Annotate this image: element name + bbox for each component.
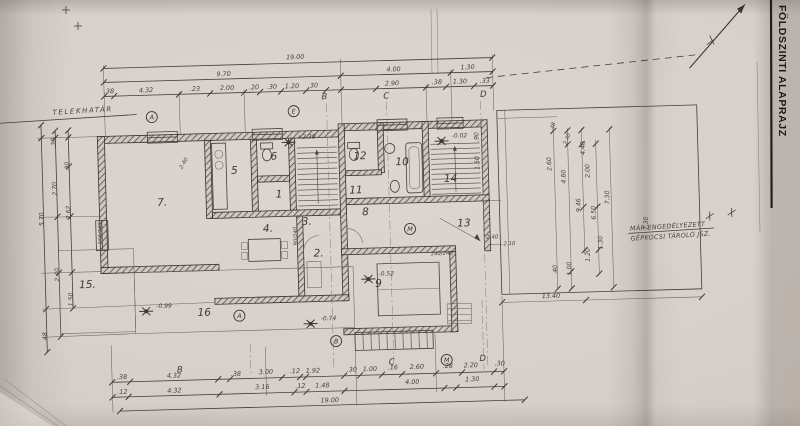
room-number: 16 <box>197 307 211 319</box>
chair <box>282 251 288 258</box>
dimension-label: .38 <box>231 370 241 378</box>
dimension-label: 1.30 <box>465 375 479 383</box>
opening-size-label: .48 <box>549 121 558 132</box>
dimension-label: .12 <box>295 382 305 390</box>
dimension-label: 1.30 <box>453 77 467 85</box>
dimension-label-vertical: 2.62 <box>65 205 72 219</box>
dimension-label: 9.70 <box>216 70 230 78</box>
chair <box>241 242 247 249</box>
section-line-B <box>326 103 333 367</box>
opening-size-label: 2.40 <box>563 132 573 146</box>
dimension-label-vertical: 1.50 <box>474 156 481 170</box>
garage-outline <box>497 104 738 295</box>
dimension-label-vertical: .30 <box>64 161 71 171</box>
level-value: -0.02 <box>452 132 468 139</box>
north-arrow <box>484 4 747 77</box>
toilet-tank <box>261 143 273 149</box>
sheet-fold-line <box>771 0 772 208</box>
dimension-label: 4.32 <box>167 386 181 394</box>
dimension-label: 1.00 <box>363 365 377 373</box>
room-number: 10 <box>395 156 409 168</box>
room-number: 9 <box>375 278 382 290</box>
dimension-label: 19.00 <box>321 396 340 405</box>
level-mark-icon <box>361 275 375 283</box>
terrace-15-outline <box>58 249 135 334</box>
section-label: D <box>480 90 487 100</box>
washbasin-icon <box>385 143 395 153</box>
kitchen-counter <box>212 143 228 209</box>
toilet-tank <box>348 142 360 148</box>
grid-marker-letter: E <box>292 107 297 115</box>
dimension-label: .20 <box>249 83 259 91</box>
room-number: 7. <box>157 197 167 209</box>
dimension-label: 1.48 <box>315 381 329 389</box>
opening-size-label: 2.40 <box>486 234 499 240</box>
dimension-label: .23 <box>190 85 200 93</box>
dimension-label-vertical: 1.50 <box>68 292 75 306</box>
dimension-lines <box>36 49 707 416</box>
dimension-label-vertical: 5.70 <box>38 212 45 226</box>
opening-size-label: 2.10 <box>503 241 516 247</box>
dimension-label: 1.30 <box>460 63 474 71</box>
staircase-room3 <box>297 147 339 206</box>
sheet-edges <box>0 0 772 426</box>
room-number: 5 <box>231 165 238 177</box>
room-number: 11 <box>349 184 363 196</box>
dimension-label: .30 <box>495 359 505 367</box>
level-value: +2.38 <box>297 134 316 142</box>
dimension-label-vertical: .30 <box>50 138 57 148</box>
dimension-label-vertical: 6.50 <box>590 206 597 220</box>
room-number: 1 <box>275 188 282 200</box>
dimension-label-vertical: .90 <box>473 132 480 142</box>
stove-icon <box>215 161 223 169</box>
room-number: 13 <box>457 217 471 229</box>
section-label: C <box>383 91 389 101</box>
corner-fold-shade <box>0 392 52 426</box>
dimension-label: .38 <box>432 78 442 86</box>
dimension-ticks <box>36 49 707 416</box>
dimension-label: 3.16 <box>255 383 269 391</box>
break-marks <box>706 208 736 221</box>
garage-note: MÁR ENGEDÉLYEZETT GÉPKOCSI TÁROLÓ JSZ. <box>628 219 715 243</box>
sink-icon <box>215 150 223 158</box>
wardrobe <box>307 261 322 287</box>
top-crease-line2 <box>437 9 438 74</box>
dimension-label-vertical: .40 <box>552 265 559 275</box>
dimension-label: .33 <box>480 77 490 85</box>
grid-marker-letter: B <box>334 337 339 345</box>
room-number: 4. <box>263 223 273 235</box>
section-label: D <box>479 354 486 364</box>
room-number: 2. <box>313 247 323 259</box>
table <box>248 239 281 262</box>
toilet-icon <box>390 180 399 192</box>
dimension-label: 13.40 <box>542 292 561 301</box>
room-number: 14 <box>444 173 458 185</box>
dimension-label-vertical: 1.20 <box>585 248 592 262</box>
room-number: 8 <box>362 206 369 218</box>
grid-marker-letter: M <box>407 225 413 233</box>
sheet-edge-line <box>757 62 760 232</box>
drawing-title: FÖLDSZINTI ALAPRAJZ <box>776 5 789 137</box>
scanned-floor-plan-sheet: FÖLDSZINTI ALAPRAJZ <box>0 0 800 426</box>
door-swing <box>347 228 362 243</box>
dimension-label: 2.90 <box>385 79 399 87</box>
dimension-label-vertical: 7.30 <box>604 190 611 204</box>
section-label: B <box>177 365 183 375</box>
opening-size-label: 90/240 <box>293 226 300 246</box>
grid-marker-letter: A <box>148 113 154 121</box>
dimension-label-vertical: 2.40 <box>54 268 61 282</box>
dimension-label: 1.92 <box>306 366 320 374</box>
opening-size-label: 150/240 <box>98 222 105 245</box>
dimension-label: 19.00 <box>286 53 305 62</box>
dimension-label: 4.00 <box>386 65 400 73</box>
dimension-label-vertical: 1.30 <box>597 236 604 250</box>
dimension-label: 2.20 <box>464 361 478 369</box>
room-number: 15. <box>79 279 96 291</box>
room-number: 6 <box>270 151 277 163</box>
dimension-label: .30 <box>347 365 357 373</box>
dimension-label: 3.00 <box>259 368 273 376</box>
dimension-label: .38 <box>104 87 114 95</box>
grid-marker-letter: A <box>236 312 242 320</box>
room-number: 3. <box>302 216 312 228</box>
dimension-label-vertical: 2.70 <box>52 182 59 196</box>
corner-register-ticks <box>62 6 82 30</box>
level-mark-icon <box>304 320 318 328</box>
dimension-label: .12 <box>290 367 300 375</box>
level-mark-icon <box>139 307 153 315</box>
dimension-label: 1.20 <box>285 82 299 90</box>
dimension-label-vertical: 7.30 <box>643 216 650 230</box>
top-crease-line <box>431 9 432 74</box>
dimension-label: .12 <box>117 388 127 396</box>
chair <box>281 241 287 248</box>
floor-plan-canvas: FÖLDSZINTI ALAPRAJZ <box>0 0 800 426</box>
dimension-label: .38 <box>117 373 127 381</box>
level-value: -0.52 <box>378 270 394 277</box>
dimension-label-vertical: 2.00 <box>584 164 591 178</box>
dimension-label-vertical: 4.60 <box>560 170 567 184</box>
level-value: -0.99 <box>156 303 172 310</box>
chair <box>242 252 248 259</box>
dimension-label-vertical: 9.46 <box>575 198 582 212</box>
dimension-label: 2.60 <box>410 363 424 371</box>
room-number: 12 <box>353 150 367 162</box>
boundary-label: TELEKHATÁR <box>52 104 113 117</box>
dimension-label-vertical: .48 <box>42 332 49 342</box>
plan-group: TELEKHATÁR MÁR ENGEDÉLYEZETT GÉPKOCSI TÁ… <box>0 4 756 417</box>
dimension-label-vertical: 2.60 <box>546 157 553 171</box>
opening-size-label: 2.40 <box>179 156 191 170</box>
dimension-label: .30 <box>308 81 318 89</box>
section-label: C <box>389 357 395 367</box>
dimension-label: 4.00 <box>405 378 419 386</box>
dimension-label-vertical: 4.40 <box>580 141 587 155</box>
dimension-label: 4.32 <box>139 86 153 94</box>
dimension-label-vertical: 1.00 <box>566 261 573 275</box>
section-label: B <box>321 92 327 102</box>
grid-marker-letter: M <box>444 356 450 364</box>
dimension-label: .30 <box>267 83 277 91</box>
dimension-label: 2.00 <box>220 84 234 92</box>
level-value: -0.74 <box>321 315 337 322</box>
section-line-C <box>386 102 393 364</box>
opening-size-label: 140/240 <box>430 251 453 258</box>
